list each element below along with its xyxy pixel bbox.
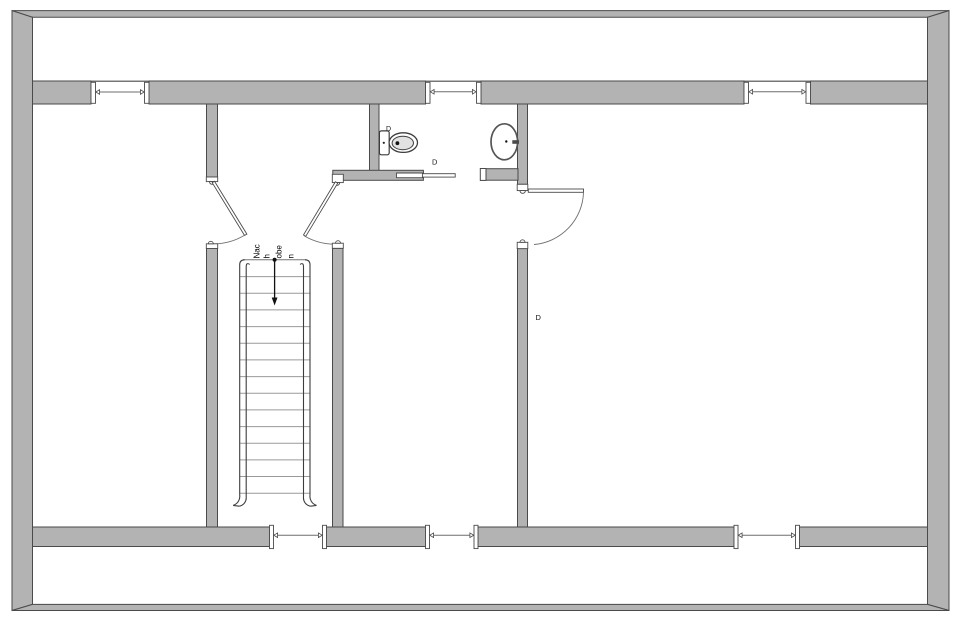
svg-text:D: D	[386, 126, 391, 133]
svg-text:h: h	[263, 254, 272, 258]
svg-text:Nac: Nac	[253, 244, 262, 258]
svg-text:n: n	[287, 254, 296, 258]
svg-text:D: D	[536, 313, 542, 322]
svg-text:obe: obe	[275, 245, 284, 259]
svg-text:D: D	[432, 158, 438, 167]
